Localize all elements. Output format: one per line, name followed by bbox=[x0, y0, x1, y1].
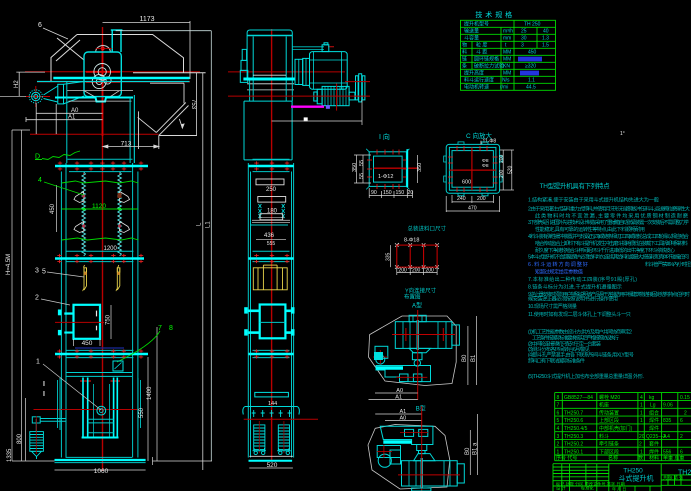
svg-text:料斗管严禁26%內/小时扭: 料斗管严禁26%內/小时扭 bbox=[645, 260, 691, 268]
svg-text:750: 750 bbox=[106, 314, 112, 325]
svg-text:335: 335 bbox=[386, 252, 392, 261]
svg-text:8-Φ18: 8-Φ18 bbox=[404, 238, 419, 244]
svg-text:≥320: ≥320 bbox=[525, 64, 536, 70]
svg-text:料斗运行速度: 料斗运行速度 bbox=[464, 77, 494, 84]
svg-text:2: 2 bbox=[680, 434, 683, 440]
svg-text:0.15: 0.15 bbox=[680, 395, 690, 401]
svg-text:1: 1 bbox=[36, 359, 40, 366]
svg-text:9.06: 9.06 bbox=[663, 403, 673, 409]
svg-text:牵引链条: 牵引链条 bbox=[599, 441, 619, 448]
svg-text:1335: 1335 bbox=[7, 448, 13, 462]
svg-text:TH250.3: TH250.3 bbox=[564, 434, 583, 440]
svg-text:电动机转速: 电动机转速 bbox=[464, 84, 489, 91]
svg-text:2.由于采用灌注式装料重力式卸料,并使用月牙形无缝钢板冲压料: 2.由于采用灌注式装料重力式卸料,并使用月牙形无缝钢板冲压料斗,运送颗粒磨琢性大 bbox=[528, 205, 690, 213]
svg-text:200: 200 bbox=[426, 268, 435, 274]
svg-text:556: 556 bbox=[663, 449, 672, 455]
svg-text:B0: B0 bbox=[465, 447, 471, 455]
svg-text:11.使用时如有发现二层斗体孔上下调整头斗一只: 11.使用时如有发现二层斗体孔上下调整头斗一只 bbox=[528, 310, 631, 318]
svg-text:4: 4 bbox=[38, 177, 42, 184]
svg-text:物: 物 bbox=[462, 42, 467, 49]
svg-text:25: 25 bbox=[521, 29, 527, 35]
svg-text:Φ8: Φ8 bbox=[482, 163, 489, 169]
svg-text:B型: B型 bbox=[416, 405, 426, 413]
svg-text:m³/h: m³/h bbox=[503, 29, 513, 35]
svg-text:10.现场尺寸需严格测量: 10.现场尺寸需严格测量 bbox=[528, 302, 577, 310]
svg-text:800: 800 bbox=[17, 433, 23, 444]
svg-text:44.5: 44.5 bbox=[526, 85, 536, 91]
svg-text:90: 90 bbox=[371, 190, 377, 196]
svg-text:序号 代号: 序号 代号 bbox=[556, 455, 577, 462]
svg-text:835: 835 bbox=[663, 418, 672, 424]
svg-text:470: 470 bbox=[468, 206, 477, 212]
svg-text:2: 2 bbox=[557, 442, 560, 448]
svg-text:总装进料口尺寸: 总装进料口尺寸 bbox=[408, 225, 447, 233]
svg-text:1: 1 bbox=[640, 449, 643, 455]
svg-text:L1: L1 bbox=[206, 221, 212, 228]
svg-text:粒 度: 粒 度 bbox=[476, 42, 487, 49]
svg-text:350: 350 bbox=[417, 163, 423, 172]
svg-text:436: 436 bbox=[264, 233, 275, 239]
svg-text:A0: A0 bbox=[396, 388, 403, 394]
svg-text:H2: H2 bbox=[14, 80, 20, 88]
svg-text:550: 550 bbox=[139, 407, 145, 418]
svg-text:TH 250: TH 250 bbox=[524, 22, 541, 28]
svg-text:450: 450 bbox=[82, 340, 93, 347]
svg-text:年 月 日: 年 月 日 bbox=[612, 485, 626, 491]
svg-text:TH250.2: TH250.2 bbox=[564, 442, 583, 448]
svg-text:450: 450 bbox=[50, 203, 56, 214]
svg-text:A0: A0 bbox=[71, 108, 79, 114]
svg-text:kg: kg bbox=[649, 395, 655, 401]
svg-text:1060: 1060 bbox=[94, 468, 109, 475]
svg-text:2: 2 bbox=[639, 442, 642, 448]
svg-text:1°: 1° bbox=[620, 131, 625, 137]
svg-text:1: 1 bbox=[640, 418, 643, 424]
svg-text:1400: 1400 bbox=[147, 386, 153, 400]
svg-text:4: 4 bbox=[557, 426, 560, 432]
svg-text:提升机型号: 提升机型号 bbox=[464, 21, 489, 28]
svg-text:1-Φ12: 1-Φ12 bbox=[378, 174, 393, 180]
svg-text:I 向: I 向 bbox=[379, 132, 390, 141]
svg-text:150: 150 bbox=[383, 190, 392, 196]
svg-text:240: 240 bbox=[457, 196, 466, 202]
svg-text:6: 6 bbox=[38, 22, 42, 29]
svg-text:机座: 机座 bbox=[599, 402, 609, 409]
svg-text:TH250.6: TH250.6 bbox=[564, 418, 583, 424]
svg-text:候安装逆止器必须按照说明书进行操作使用: 候安装逆止器必须按照说明书进行操作使用 bbox=[528, 295, 618, 303]
svg-text:材料: 材料 bbox=[649, 455, 659, 462]
svg-text:技 术 规 格: 技 术 规 格 bbox=[475, 10, 512, 19]
svg-text:GB8527—84: GB8527—84 bbox=[564, 395, 593, 401]
svg-text:MM: MM bbox=[503, 57, 511, 63]
svg-text:3.下部壳是引进国外先进技术设计制造,采用了重锤箱自动张紧装: 3.下部壳是引进国外先进技术设计制造,采用了重锤箱自动张紧装置,一次安装后不需调… bbox=[528, 218, 689, 226]
svg-text:4.料斗装有弹性缓冲装置,并与轮毂(五.四)或链条相切(工四: 4.料斗装有弹性缓冲装置,并与轮毂(五.四)或链条相切(工四)或链轮总成,工四轮… bbox=[528, 232, 690, 240]
svg-text:1: 1 bbox=[640, 410, 643, 416]
svg-text:1120: 1120 bbox=[92, 203, 106, 210]
svg-text:8: 8 bbox=[169, 325, 173, 332]
svg-text:3: 3 bbox=[521, 43, 524, 49]
svg-text:斗 距: 斗 距 bbox=[476, 50, 487, 56]
svg-text:焊件: 焊件 bbox=[649, 417, 659, 424]
svg-text:1: 1 bbox=[557, 449, 560, 455]
svg-text:mm: mm bbox=[503, 36, 511, 42]
svg-text:520: 520 bbox=[267, 462, 278, 469]
svg-text:下部区段: 下部区段 bbox=[599, 448, 619, 455]
svg-text:共 张 第 张: 共 张 第 张 bbox=[663, 474, 684, 481]
svg-text:30: 30 bbox=[521, 36, 527, 42]
svg-text:8: 8 bbox=[557, 395, 560, 401]
svg-text:标准化: 标准化 bbox=[581, 485, 594, 491]
svg-text:40: 40 bbox=[543, 29, 549, 35]
svg-text:H=4.5M: H=4.5M bbox=[6, 254, 12, 275]
svg-text:套件: 套件 bbox=[649, 441, 659, 448]
svg-text:A型: A型 bbox=[412, 302, 422, 310]
svg-text:A0: A0 bbox=[400, 416, 407, 422]
svg-text:7: 7 bbox=[158, 325, 162, 332]
svg-text:料斗: 料斗 bbox=[599, 433, 609, 440]
svg-text:数: 数 bbox=[638, 455, 643, 462]
svg-text:1.5: 1.5 bbox=[542, 43, 549, 49]
svg-text:200: 200 bbox=[499, 169, 505, 178]
svg-text:55: 55 bbox=[359, 160, 365, 166]
svg-text:设 计: 设 计 bbox=[556, 485, 566, 491]
svg-text:MM: MM bbox=[503, 50, 511, 56]
svg-text:上部区段: 上部区段 bbox=[599, 417, 619, 424]
svg-text:5: 5 bbox=[557, 418, 560, 424]
svg-text:耐久度下净,链轮啮合斗秤间距,环斗千斤进,串低的出牛净度,下: 耐久度下净,链轮啮合斗秤间距,环斗千斤进,串低的出牛净度,下环斗依铁皮心 bbox=[535, 246, 675, 254]
svg-text:B1 a: B1 a bbox=[473, 442, 479, 455]
svg-text:5: 5 bbox=[42, 269, 46, 276]
svg-text:TH250.1: TH250.1 bbox=[564, 449, 583, 455]
svg-text:2: 2 bbox=[35, 295, 39, 302]
svg-text:350: 350 bbox=[352, 163, 358, 172]
svg-text:(4)额斗孔严禁混手,由各下联系所间斗链条,用XLY型号: (4)额斗孔严禁混手,由各下联系所间斗链条,用XLY型号 bbox=[528, 351, 634, 359]
svg-text:753: 753 bbox=[190, 99, 196, 110]
svg-text:中部机壳(加门): 中部机壳(加门) bbox=[599, 425, 633, 432]
svg-text:200: 200 bbox=[412, 268, 421, 274]
svg-text:200: 200 bbox=[399, 268, 408, 274]
svg-text:713: 713 bbox=[121, 141, 132, 148]
svg-text:Lg: Lg bbox=[650, 403, 656, 409]
svg-text:4: 4 bbox=[640, 395, 643, 401]
svg-text:A1: A1 bbox=[68, 115, 76, 121]
svg-text:600: 600 bbox=[462, 180, 471, 186]
svg-text:I: I bbox=[43, 381, 45, 388]
svg-text:2: 2 bbox=[684, 410, 687, 416]
svg-text:5.本斗式提升机不会超载保护必须给料均匀连续,其给料粒度最大: 5.本斗式提升机不会超载保护必须给料均匀连续,其给料粒度最大,按链轮和壳体不碰撞… bbox=[528, 253, 689, 261]
svg-text:20: 20 bbox=[639, 434, 645, 440]
svg-text:6.料斗运转方向调整好: 6.料斗运转方向调整好 bbox=[528, 260, 588, 268]
svg-text:名称: 名称 bbox=[608, 455, 618, 462]
svg-text:20: 20 bbox=[408, 190, 414, 196]
svg-text:KN: KN bbox=[503, 64, 510, 70]
svg-text:r/mi: r/mi bbox=[500, 85, 508, 91]
svg-text:7: 7 bbox=[557, 403, 560, 409]
svg-text:螺栓 M20: 螺栓 M20 bbox=[599, 394, 620, 401]
svg-text:卸料口有下联法国际标准条件: 卸料口有下联法国际标准条件 bbox=[528, 357, 585, 365]
svg-text:焊件: 焊件 bbox=[649, 425, 659, 432]
svg-text:6: 6 bbox=[680, 418, 683, 424]
svg-text:3: 3 bbox=[557, 434, 560, 440]
svg-text:TH250: TH250 bbox=[623, 468, 643, 475]
svg-text:7.本标准给出二种传动工四装(序号91殿(厚孔): 7.本标准给出二种传动工四装(序号91殿(厚孔) bbox=[528, 275, 637, 283]
svg-text:组合: 组合 bbox=[649, 409, 659, 416]
svg-text:555: 555 bbox=[267, 241, 276, 247]
svg-text:200: 200 bbox=[477, 196, 486, 202]
svg-text:200: 200 bbox=[499, 154, 505, 163]
svg-text:MM: MM bbox=[503, 71, 511, 77]
svg-text:150: 150 bbox=[396, 190, 405, 196]
svg-text:圆环链规格: 圆环链规格 bbox=[474, 56, 499, 63]
svg-text:1.3: 1.3 bbox=[542, 36, 549, 42]
svg-text:矩超过规定给定参数值: 矩超过规定给定参数值 bbox=[535, 268, 583, 276]
svg-text:提升高度: 提升高度 bbox=[464, 70, 484, 77]
svg-text:250: 250 bbox=[266, 187, 277, 193]
svg-text:3: 3 bbox=[35, 268, 39, 275]
svg-text:(5)TH250斗式提升机上加也布全部重量总重量详图 外形.: (5)TH250斗式提升机上加也布全部重量总重量详图 外形. bbox=[528, 372, 644, 380]
svg-text:1173: 1173 bbox=[139, 16, 154, 23]
svg-text:6: 6 bbox=[680, 449, 683, 455]
svg-text:55: 55 bbox=[359, 173, 365, 179]
svg-text:A1: A1 bbox=[395, 395, 402, 401]
svg-text:8.链条斗标分为31进,千式提升机遵循图示: 8.链条斗标分为31进,千式提升机遵循图示 bbox=[528, 283, 622, 291]
svg-text:1: 1 bbox=[640, 403, 643, 409]
svg-text:6: 6 bbox=[557, 410, 560, 416]
svg-text:破断拉力试验: 破断拉力试验 bbox=[474, 63, 504, 70]
svg-text:B0: B0 bbox=[462, 354, 468, 362]
svg-text:2.4: 2.4 bbox=[663, 434, 670, 440]
svg-text:单重 总重: 单重 总重 bbox=[663, 455, 684, 462]
svg-text:啮合传动齿合上,卸料下有斗提升机,发生冲击,磨斗损耗很低,在: 啮合传动齿合上,卸料下有斗提升机,发生冲击,磨斗损耗很低,在装载下工具拆卸特殊材… bbox=[535, 239, 688, 247]
svg-text:链: 链 bbox=[462, 56, 467, 63]
svg-text:A1: A1 bbox=[400, 409, 407, 415]
svg-text:工艺条件按国际标准要求,核实后严格按照协议执行: 工艺条件按国际标准要求,核实后严格按照协议执行 bbox=[532, 334, 619, 342]
svg-text:条: 条 bbox=[462, 63, 467, 70]
svg-text:520: 520 bbox=[508, 165, 514, 174]
svg-text:1.1: 1.1 bbox=[528, 78, 535, 84]
svg-text:N/s: N/s bbox=[502, 78, 510, 84]
svg-text:TH型提升机具有下列特点: TH型提升机具有下列特点 bbox=[540, 181, 611, 190]
svg-text:传动装置: 传动装置 bbox=[599, 409, 619, 416]
svg-text:焊件: 焊件 bbox=[649, 448, 659, 455]
svg-text:B1: B1 bbox=[471, 354, 477, 362]
svg-text:斗容量: 斗容量 bbox=[464, 35, 479, 42]
svg-text:料: 料 bbox=[462, 49, 467, 56]
svg-text:输送量: 输送量 bbox=[464, 28, 479, 35]
svg-text:1.结构紧凑,便于安装由于采用斗式提升机结构先进大为一般: 1.结构紧凑,便于安装由于采用斗式提升机结构先进大为一般 bbox=[528, 196, 659, 204]
svg-text:此类物料时均不宜泄漏,主要零件均采用优质钢材制造耐磨: 此类物料时均不宜泄漏,主要零件均采用优质钢材制造耐磨 bbox=[535, 212, 688, 220]
svg-text:Y向连接尺寸: Y向连接尺寸 bbox=[405, 287, 437, 295]
svg-text:布置图: 布置图 bbox=[404, 293, 421, 301]
svg-text:I: I bbox=[43, 391, 45, 398]
svg-text:450: 450 bbox=[528, 50, 537, 56]
svg-text:性能稳定,具有可靠的运转性等特点,由此下料顺畅耐用: 性能稳定,具有可靠的运转性等特点,由此下料顺畅耐用 bbox=[535, 225, 645, 233]
svg-text:(1)机.工艺性能参数由设计方,供方及用户共同协商审定2: (1)机.工艺性能参数由设计方,供方及用户共同协商审定2 bbox=[528, 328, 632, 336]
svg-text:TH250.7: TH250.7 bbox=[564, 410, 583, 416]
svg-text:TH250.4/5: TH250.4/5 bbox=[564, 426, 588, 432]
